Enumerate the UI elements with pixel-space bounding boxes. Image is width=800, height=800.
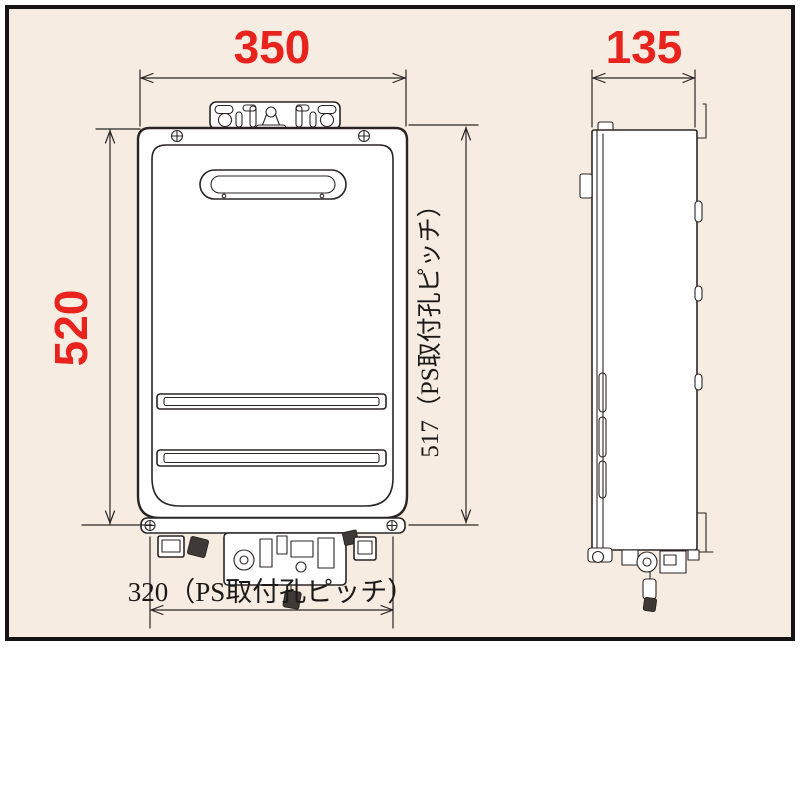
front-width-label: 350 [234, 21, 311, 73]
side-dial [637, 552, 657, 572]
side-body [580, 122, 702, 550]
screw-top-left [172, 131, 183, 142]
side-body-outline [592, 130, 697, 550]
side-back-bump-2 [695, 286, 702, 301]
side-foot-hole [593, 552, 604, 563]
side-back-bump-1 [695, 201, 702, 222]
ps-hole-right [387, 521, 397, 531]
bottom-flange [141, 518, 405, 533]
side-depth-label: 135 [606, 21, 683, 73]
side-left-tab [580, 174, 592, 198]
side-connector [622, 550, 638, 565]
manifold-dial [234, 550, 254, 570]
vent-outer [200, 170, 346, 199]
dimension-drawing-page: 350 520 517（PS取付孔ピッチ） 320（PS取付孔ピッチ） [0, 0, 800, 800]
front-height-label: 520 [45, 290, 97, 367]
side-stub [688, 550, 699, 560]
ps-pitch-vertical-label: 517（PS取付孔ピッチ） [416, 192, 444, 457]
screw-top-right [359, 131, 370, 142]
side-caution-tag [643, 597, 657, 612]
ps-pitch-horizontal-label: 320（PS取付孔ピッチ） [128, 577, 415, 607]
unit-body [138, 128, 407, 518]
side-back-bump-3 [695, 374, 702, 390]
water-heater-dimension-diagram: 350 520 517（PS取付孔ピッチ） 320（PS取付孔ピッチ） [0, 0, 800, 800]
exhaust-vent [200, 170, 346, 199]
side-drain-pipe [643, 579, 656, 599]
left-caution-tag [187, 536, 209, 558]
